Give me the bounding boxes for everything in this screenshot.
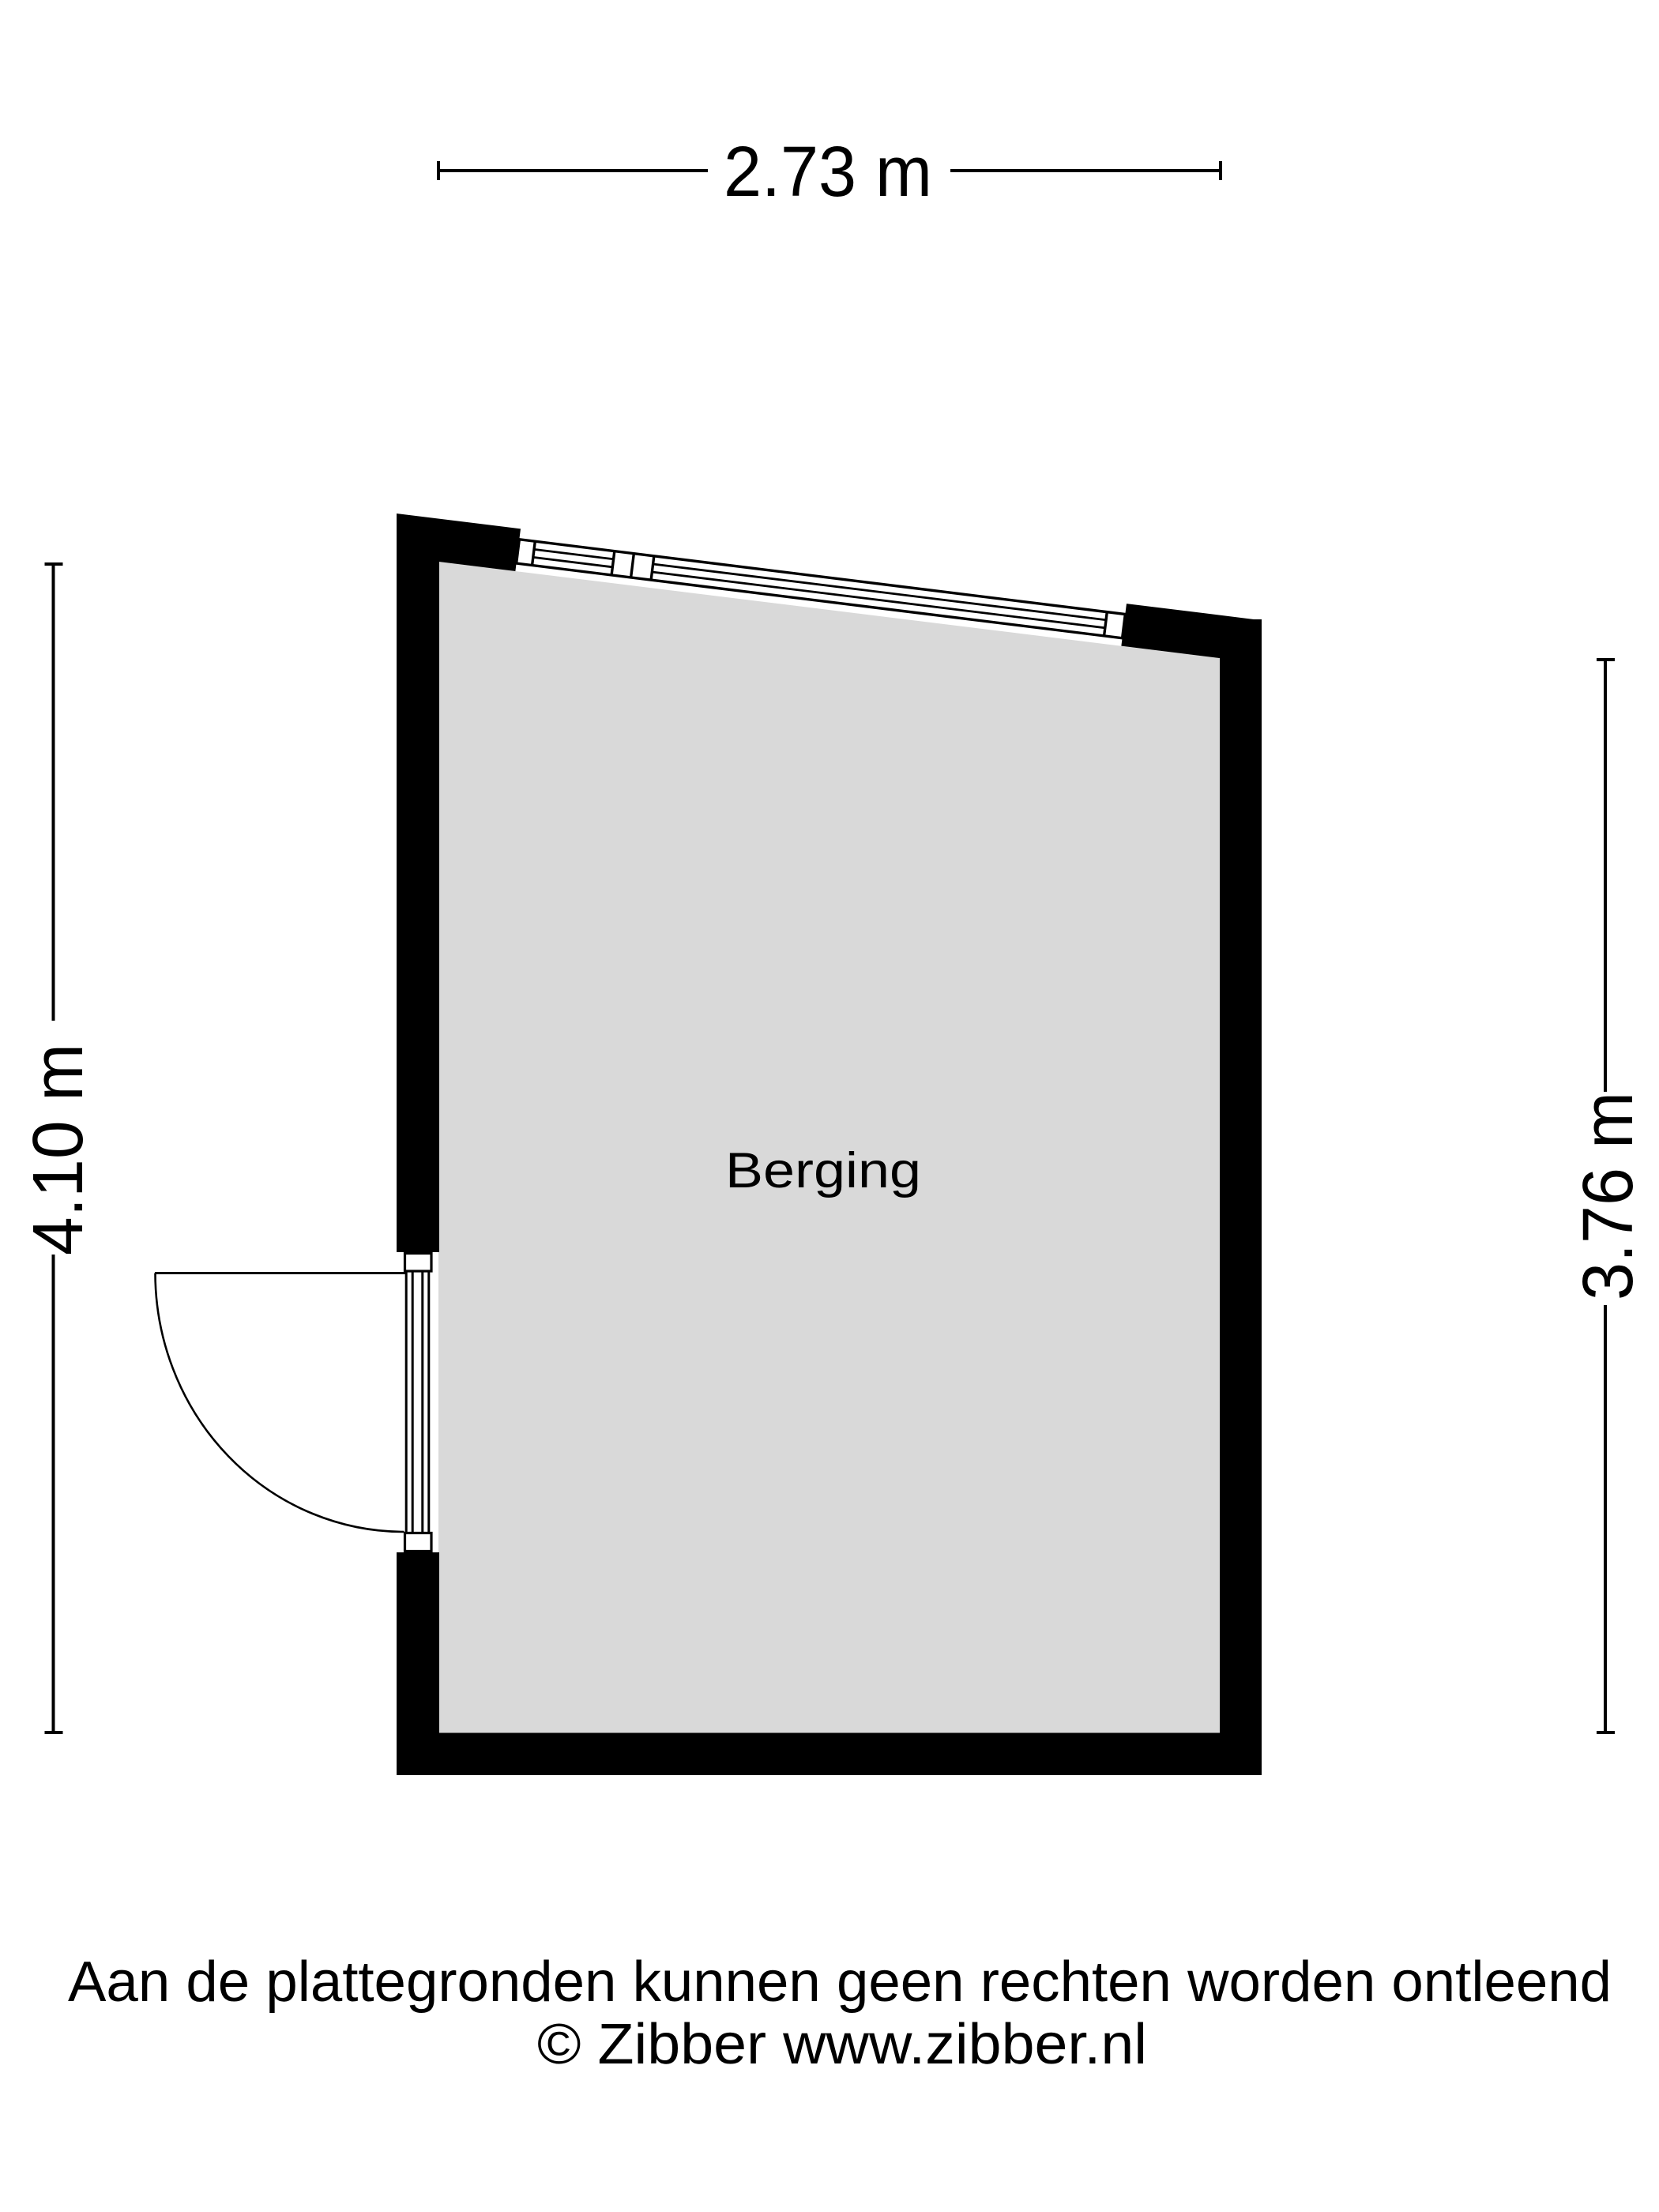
svg-text:4.10 m: 4.10 m [19, 1044, 98, 1255]
svg-text:2.73 m: 2.73 m [724, 133, 932, 212]
svg-text:3.76 m: 3.76 m [1569, 1092, 1648, 1300]
svg-text:Aan de plattegronden kunnen ge: Aan de plattegronden kunnen geen rechten… [68, 1951, 1612, 2014]
svg-text:© Zibber www.zibber.nl: © Zibber www.zibber.nl [537, 2013, 1147, 2076]
svg-text:Berging: Berging [725, 1143, 921, 1198]
